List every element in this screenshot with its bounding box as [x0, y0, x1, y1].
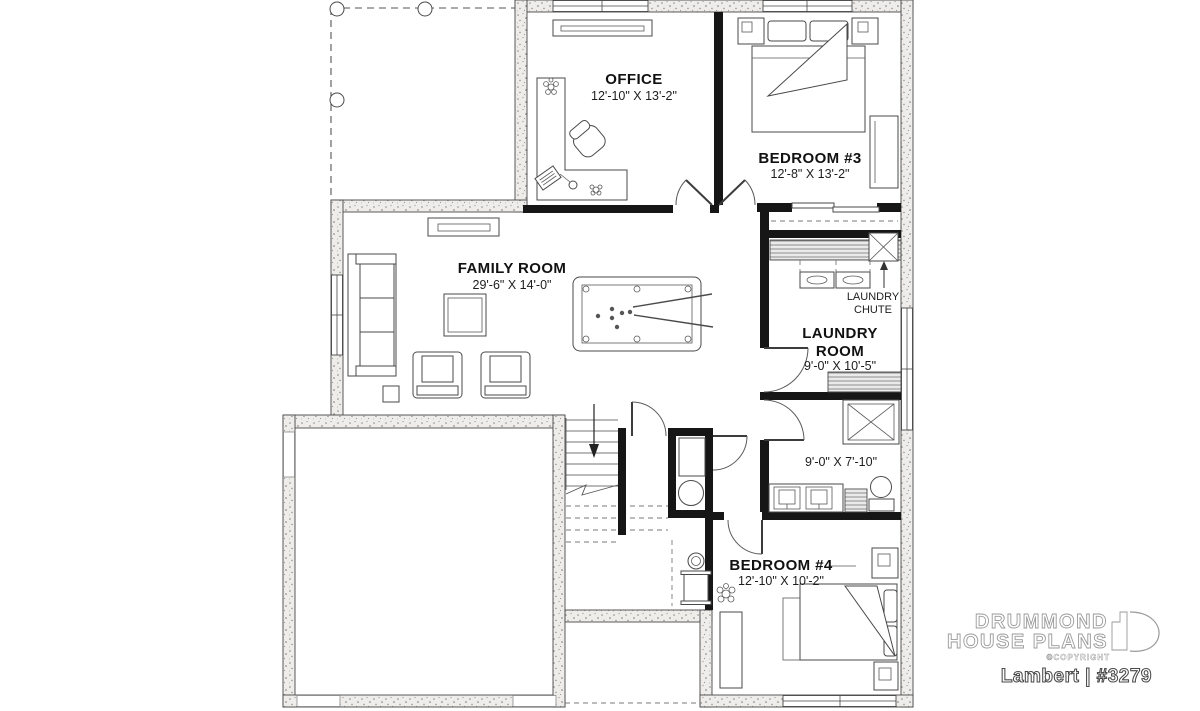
bathroom-door	[764, 400, 804, 440]
toilet	[869, 477, 894, 512]
hall-door-stairs	[632, 402, 666, 436]
dresser	[720, 612, 742, 688]
office-dims: 12'-10" X 13'-2"	[591, 89, 677, 103]
laundry-room-dims: 9'-0" X 10'-5"	[804, 359, 876, 373]
armchair	[413, 352, 462, 398]
tv-console	[428, 218, 499, 236]
laundry-counter	[828, 372, 901, 392]
bedroom4-dims: 12'-10" X 10'-2"	[738, 574, 824, 588]
armchair	[481, 352, 530, 398]
family-room-furniture	[348, 218, 713, 402]
stair-arrow	[589, 444, 599, 458]
laundry-chute-label-2: CHUTE	[854, 304, 892, 316]
floor-plan-page: OFFICE 12'-10" X 13'-2" BEDROOM #3 12'-8…	[0, 0, 1200, 711]
stair-break-line	[566, 485, 618, 495]
nightstand	[874, 662, 898, 690]
bedroom4-door	[728, 520, 762, 554]
logo-copyright: ©COPYRIGHT	[1047, 653, 1110, 662]
laundry-chute-label-1: LAUNDRY	[847, 291, 900, 303]
laundry-door	[764, 348, 808, 392]
coffee-table	[444, 294, 486, 336]
bedroom3-window	[763, 1, 852, 12]
brand-logo: DRUMMOND HOUSE PLANS ©COPYRIGHT Lambert …	[947, 611, 1159, 687]
hall-door-bedroom4-wing	[713, 436, 747, 470]
family-room-dims: 29'-6" X 14'-0"	[473, 278, 552, 292]
dresser	[870, 116, 898, 188]
pool-table	[573, 277, 713, 351]
furnace	[684, 573, 708, 603]
bathroom-dims: 9'-0" X 7'-10"	[805, 455, 877, 469]
laundry-room-label-1: LAUNDRY	[802, 325, 878, 342]
porch-outline	[330, 2, 515, 205]
nightstand	[872, 548, 898, 578]
side-table	[383, 386, 399, 402]
laundry-window	[902, 308, 913, 430]
office-cabinet	[553, 20, 652, 36]
bath-shelf	[845, 489, 867, 512]
basement-opening-bottom1	[297, 696, 340, 707]
plan-id: Lambert | #3279	[1001, 666, 1152, 687]
water-heater	[688, 553, 704, 569]
washer	[800, 272, 834, 288]
floor-plan-svg: OFFICE 12'-10" X 13'-2" BEDROOM #3 12'-8…	[0, 0, 1200, 711]
chute-arrow	[880, 261, 888, 270]
bedroom3-closet-bypass-doors	[792, 203, 879, 212]
bedroom3-label: BEDROOM #3	[758, 150, 861, 167]
drummond-logo-icon	[1112, 612, 1159, 651]
basement-opening-bottom2	[513, 696, 556, 707]
office-window	[553, 1, 648, 12]
pillow	[768, 21, 806, 41]
plant	[717, 584, 735, 603]
powder-shelf	[679, 438, 705, 476]
family-room-window	[332, 275, 343, 355]
laundry-room-label-2: ROOM	[816, 343, 864, 360]
bedroom3-door	[719, 180, 755, 205]
logo-line2: HOUSE PLANS	[947, 631, 1108, 653]
bedroom3-dims: 12'-8" X 13'-2"	[771, 167, 850, 181]
laundry-chute	[869, 233, 898, 261]
bedroom4-label: BEDROOM #4	[729, 557, 832, 574]
shower	[843, 400, 899, 444]
dryer	[836, 272, 870, 288]
sofa	[348, 254, 396, 376]
office-chair	[566, 117, 609, 160]
office-door	[676, 180, 712, 205]
logo-line1: DRUMMOND	[975, 611, 1108, 633]
office-label: OFFICE	[605, 71, 662, 88]
family-room-label: FAMILY ROOM	[458, 260, 567, 277]
office-furniture	[535, 20, 652, 200]
basement-opening-left	[284, 432, 295, 477]
pillow	[884, 590, 897, 622]
powder-toilet	[679, 481, 704, 506]
bedroom4-window	[783, 696, 896, 707]
